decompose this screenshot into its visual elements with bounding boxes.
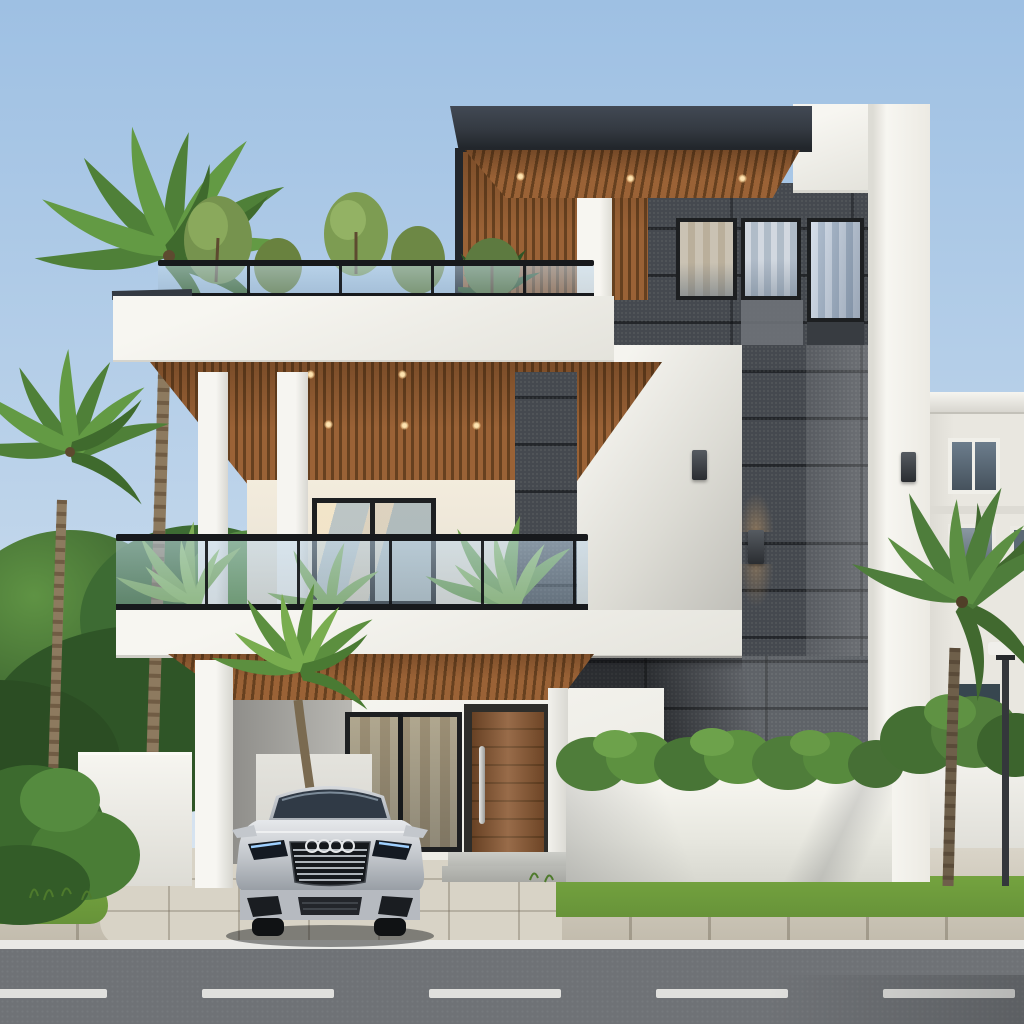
car-wheel-left — [252, 918, 284, 936]
car-mirror-left — [232, 825, 257, 838]
hedge-left — [0, 765, 140, 925]
front-vegetation — [0, 0, 1024, 1024]
architectural-render — [0, 0, 1024, 1024]
planter-bushes — [556, 728, 904, 791]
car-intake-left — [247, 896, 282, 917]
car-wheel-right — [374, 918, 406, 936]
car-intake-right — [378, 896, 413, 917]
car-center-intake — [298, 897, 362, 915]
silver-sedan — [220, 772, 440, 950]
neighbor-palm — [851, 484, 1024, 886]
car-mirror-right — [403, 825, 428, 838]
